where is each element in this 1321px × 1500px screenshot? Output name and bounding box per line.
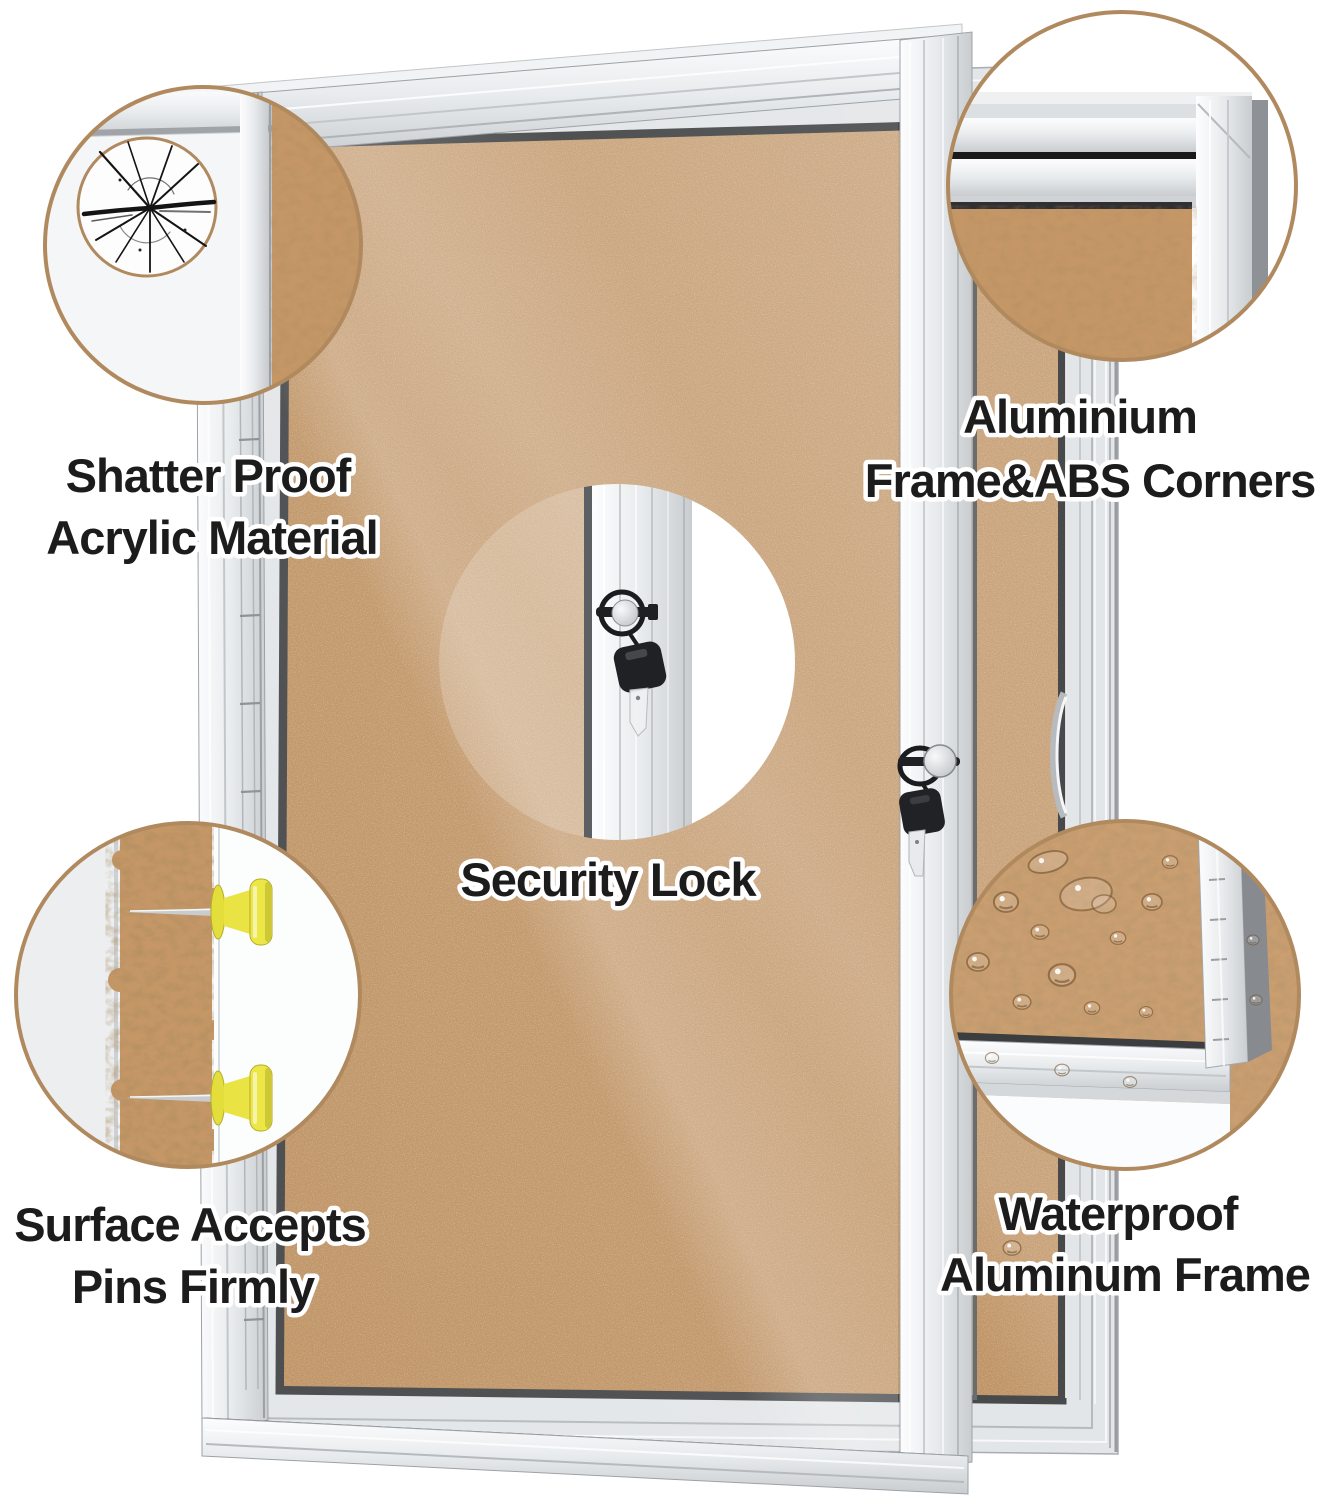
label-waterproof-line1: Waterproof (999, 1187, 1239, 1240)
label-shatter-proof-line1: Shatter Proof (66, 449, 352, 502)
cork-cross-section (108, 821, 224, 1171)
label-security-lock: Security Lock (460, 853, 757, 906)
label-aluminium-line1: Aluminium (963, 390, 1197, 443)
product-feature-infographic: Shatter Proof Acrylic Material Aluminium… (0, 0, 1321, 1500)
label-shatter-proof-line2: Acrylic Material (46, 511, 377, 564)
callout-aluminium-corner (948, 12, 1298, 365)
label-surface-pins-line2: Pins Firmly (72, 1260, 315, 1313)
callout-waterproof (949, 819, 1303, 1173)
label-waterproof-line2: Aluminum Frame (940, 1248, 1310, 1301)
label-aluminium-line2: Frame&ABS Corners (865, 454, 1316, 507)
label-surface-pins-line1: Surface Accepts (14, 1198, 366, 1251)
